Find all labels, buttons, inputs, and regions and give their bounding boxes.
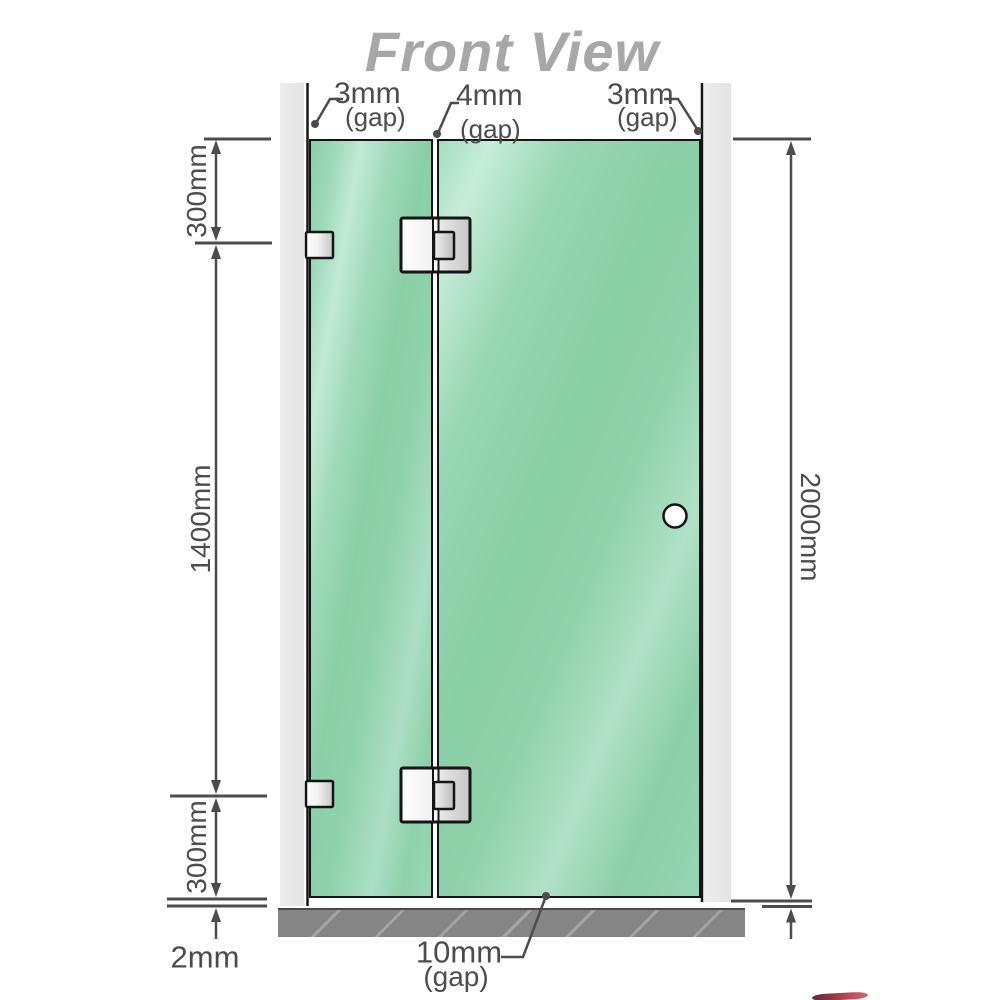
left-wall: [280, 83, 304, 906]
gap-sublabel-left: (gap): [345, 104, 406, 130]
gap-sublabel-bottom: (gap): [423, 963, 488, 991]
right-wall: [704, 83, 731, 902]
dim-label-top-300: 300mm: [183, 144, 211, 237]
dim-label-bottom-300: 300mm: [183, 800, 211, 893]
floor-base: [278, 908, 745, 937]
front-view-diagram: Front View: [0, 0, 1000, 1000]
door-glass-panel: [437, 139, 701, 898]
dim-label-total-2000: 2000mm: [796, 473, 824, 582]
gap-sublabel-right: (gap): [617, 104, 678, 130]
page-title: Front View: [365, 24, 659, 80]
cropped-logo-fragment: [812, 992, 868, 1000]
dim-label-floor-2mm: 2mm: [171, 942, 240, 973]
dim-label-middle-1400: 1400mm: [187, 465, 215, 574]
fixed-glass-panel: [309, 139, 433, 898]
gap-sublabel-center: (gap): [460, 116, 521, 142]
gap-label-center: 4mm: [456, 81, 523, 111]
